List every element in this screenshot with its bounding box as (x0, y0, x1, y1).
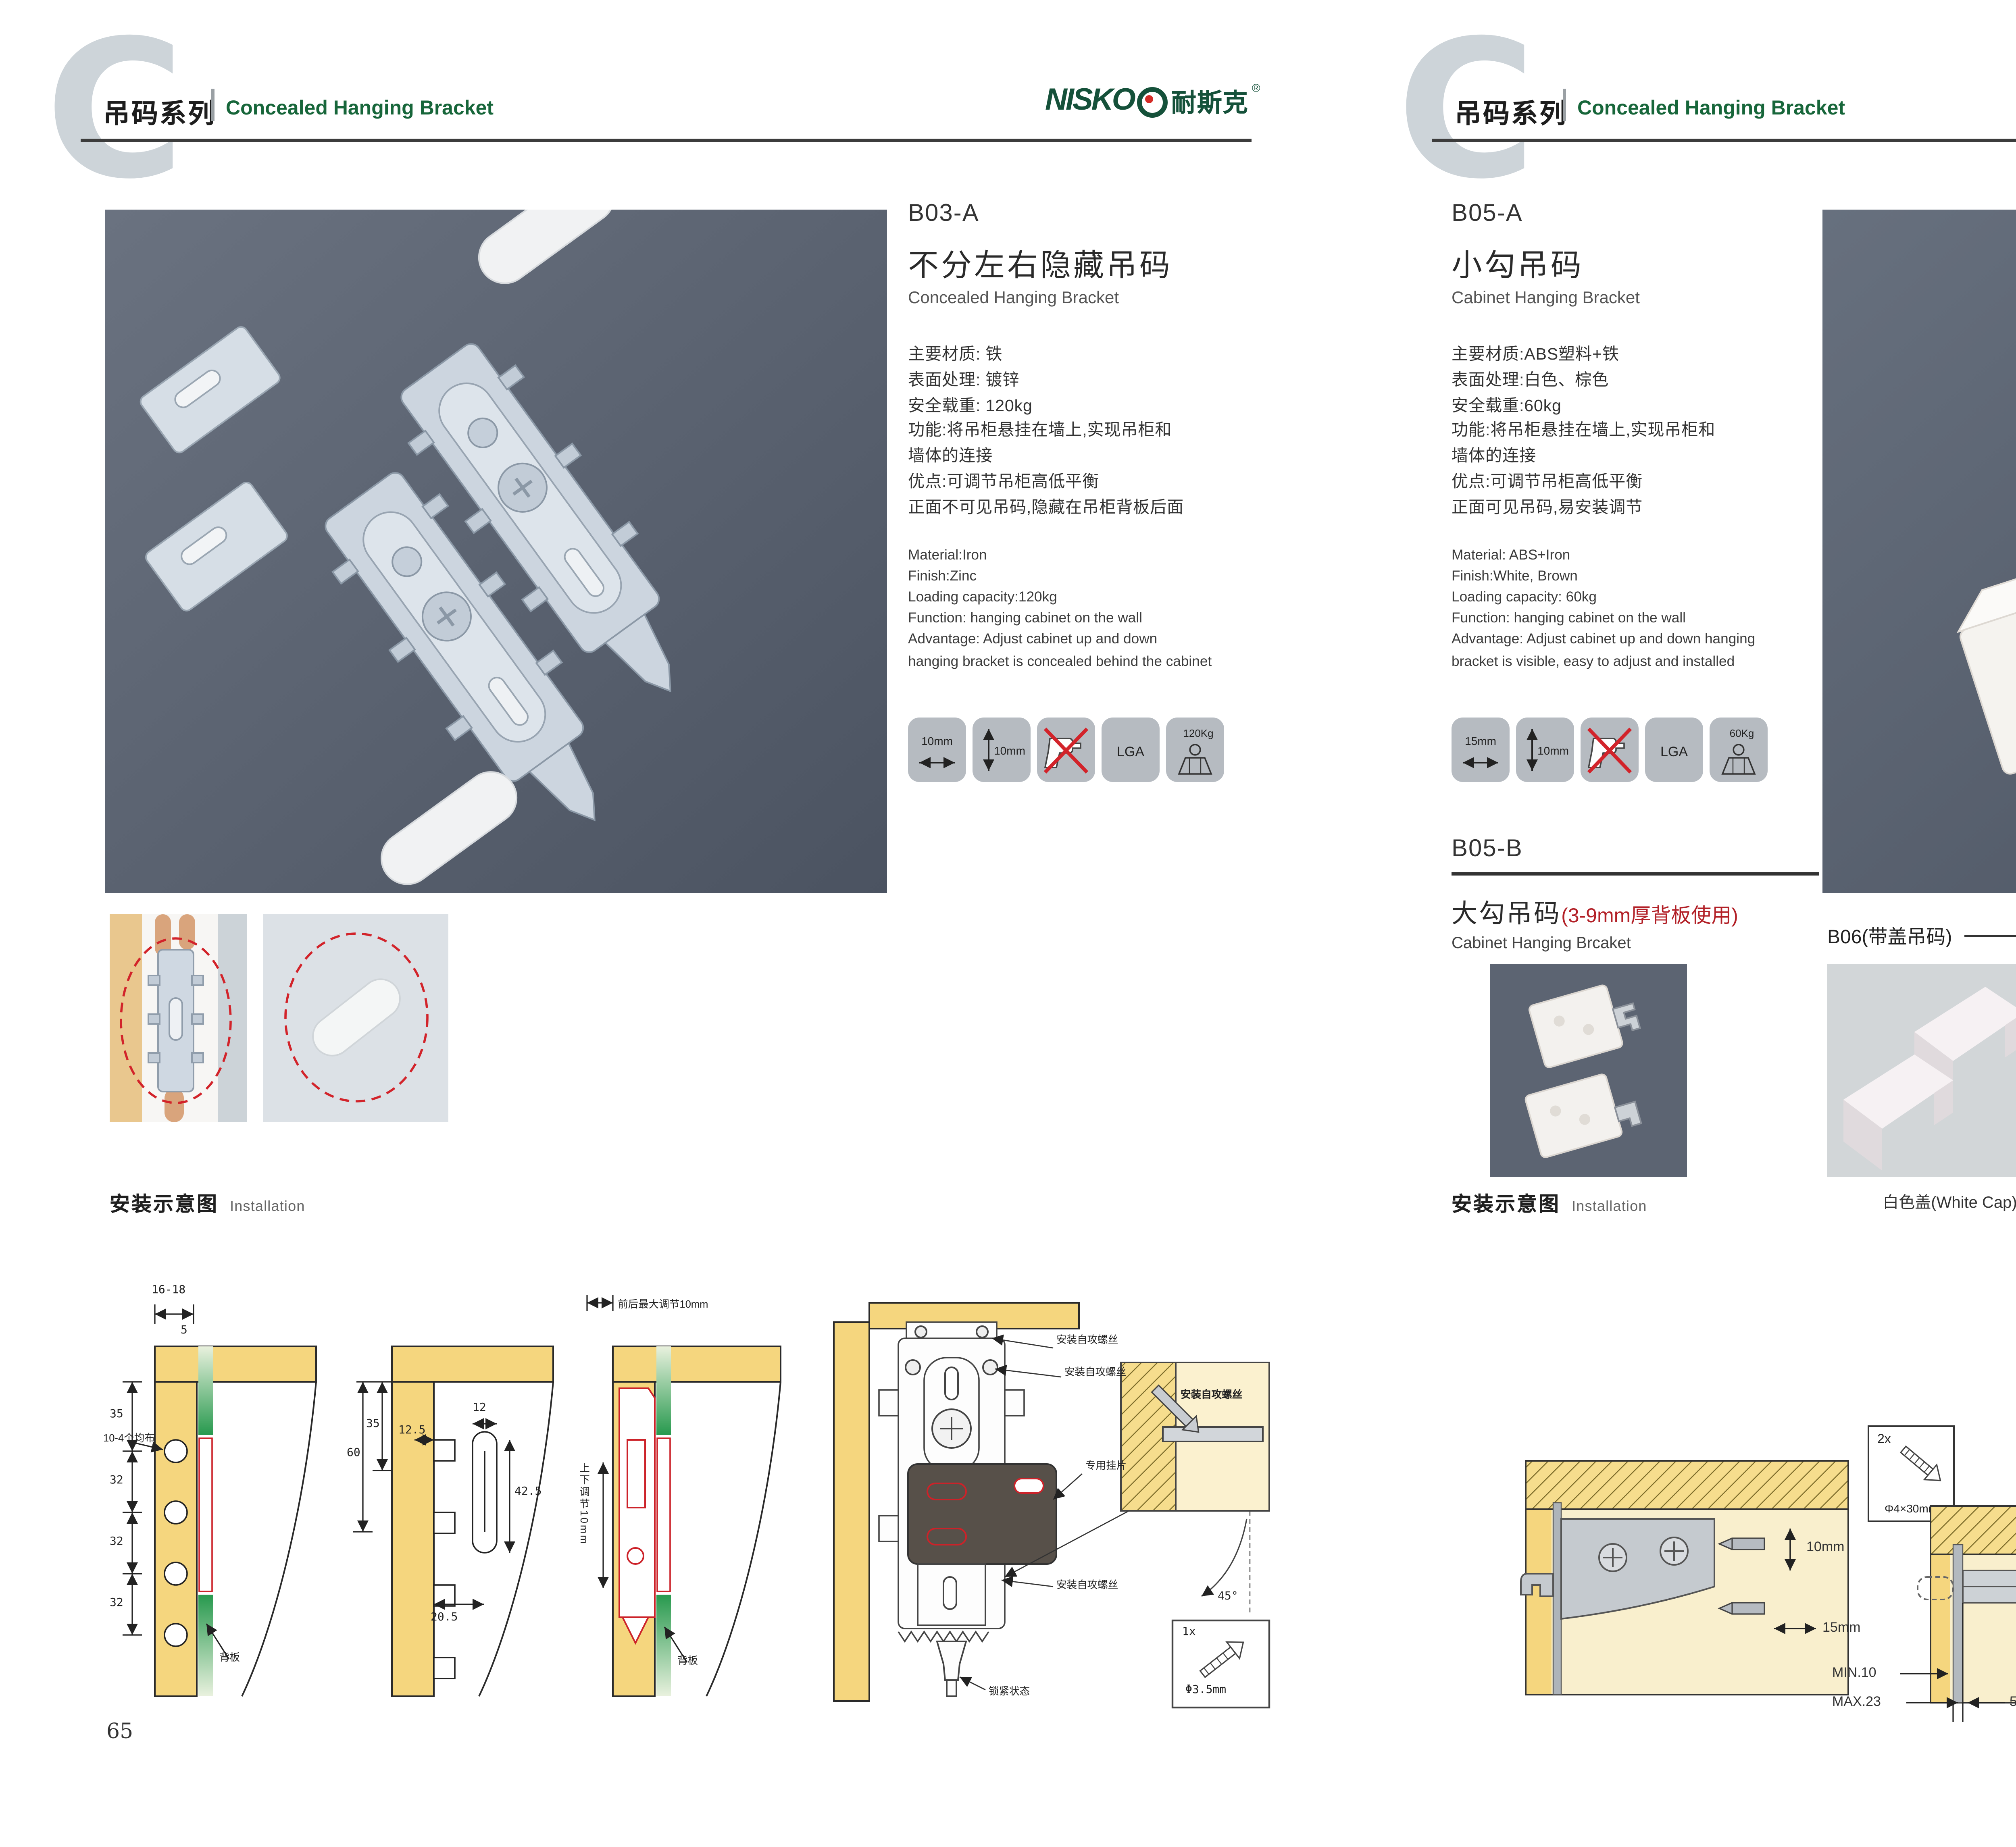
registered-mark: ® (1252, 84, 1260, 95)
height-dimension-icon: 10mm (973, 717, 1031, 782)
svg-text:10mm: 10mm (1537, 744, 1569, 757)
svg-text:15mm: 15mm (1465, 734, 1496, 747)
logo-target-icon (1137, 86, 1168, 117)
width-dimension-icon: 15mm (1452, 717, 1510, 782)
series-title-zh: 吊码系列 (1455, 92, 1568, 131)
header-separator (1563, 89, 1565, 121)
lga-cert-icon: LGA (1645, 717, 1703, 782)
installation-heading-zh: 安装示意图 (1452, 1193, 1560, 1216)
installation-heading-en: Installation (230, 1198, 305, 1214)
install-diagram-2: 60 35 12.5 12 42.5 20.5 (344, 1282, 561, 1714)
installation-heading-zh: 安装示意图 (110, 1193, 219, 1216)
spec-line: 安全载重:60kg (1452, 394, 1814, 420)
svg-text:LGA: LGA (1660, 744, 1688, 759)
spec-line: Material: ABS+Iron (1452, 544, 1814, 566)
spec-line: 优点:可调节吊柜高低平衡 (1452, 471, 1814, 496)
product-title-en: Cabinet Hanging Bracket (1452, 289, 1814, 308)
product-title-en: Cabinet Hanging Brcaket (1452, 934, 1822, 952)
spec-line: Finish:White, Brown (1452, 566, 1814, 587)
dim-label: MAX.23 (1832, 1693, 1881, 1709)
spec-line: 主要材质:ABS塑料+铁 (1452, 343, 1814, 369)
b05a-product-photo (1822, 210, 2016, 893)
product-title-zh: 不分左右隐藏吊码 (908, 242, 1271, 285)
b05b-product-photo (1490, 964, 1687, 1177)
b05b-title-note: (3-9mm厚背板使用) (1561, 904, 1738, 926)
spec-line: 表面处理:白色、棕色 (1452, 369, 1814, 394)
load-capacity-icon: 120Kg (1166, 717, 1224, 782)
dim-label: 32 (110, 1474, 123, 1487)
screw-label: 安装自攻螺丝 (1064, 1364, 1126, 1379)
dim-label: MIN.10 (1832, 1664, 1876, 1680)
spec-line: Advantage: Adjust cabinet up and down ha… (1452, 630, 1814, 651)
spec-line: 墙体的连接 (908, 445, 1271, 471)
b03a-cover-thumb (263, 914, 448, 1122)
spec-line: 功能:将吊柜悬挂在墙上,实现吊柜和 (908, 420, 1271, 445)
installation-heading-en: Installation (1572, 1198, 1647, 1214)
logo-text-zh: 耐斯克 (1171, 84, 1249, 119)
holes-label: 10-4个均布 (103, 1430, 155, 1445)
dim-label: 58 (2010, 1693, 2016, 1709)
dia-label: Φ3.5mm (1185, 1683, 1226, 1696)
b03a-info: B03-A 不分左右隐藏吊码 Concealed Hanging Bracket… (908, 200, 1271, 782)
plate-label: 专用挂片 (1085, 1458, 1127, 1472)
adjust-label-vertical: 上下调节10mm (576, 1462, 590, 1545)
spec-line: 安全载重: 120kg (908, 394, 1271, 420)
product-title-zh: 小勾吊码 (1452, 242, 1814, 285)
dim-label: 32 (110, 1535, 123, 1548)
dim-label: 5 (181, 1324, 187, 1337)
dim-label: 12 (473, 1401, 486, 1414)
dim-label: 20.5 (431, 1611, 458, 1624)
page-right: C 吊码系列 Concealed Hanging Bracket NISKO耐斯… (1352, 0, 2016, 1847)
b06-heading: B06(带盖吊码) (1827, 922, 1952, 950)
spec-line: Loading capacity:120kg (908, 587, 1271, 608)
height-dimension-icon: 10mm (1516, 717, 1574, 782)
install-diagram-r1: 10mm 15mm (1513, 1448, 1876, 1714)
spec-line: Loading capacity: 60kg (1452, 587, 1814, 608)
product-code: B03-A (908, 200, 1271, 227)
b06-white-cap-figure: 白色盖(White Cap) (1827, 964, 2016, 1213)
nisko-logo: NISKO耐斯克® (1045, 84, 1260, 119)
installation-heading: 安装示意图Installation (1452, 1187, 1647, 1217)
white-cap-image (1827, 964, 2016, 1177)
spec-line: hanging bracket is concealed behind the … (908, 651, 1271, 672)
spec-line: Advantage: Adjust cabinet up and down (908, 630, 1271, 651)
dim-label: 12.5 (398, 1424, 425, 1437)
svg-text:LGA: LGA (1117, 744, 1144, 759)
spec-line: 正面不可见吊码,隐藏在吊柜背板后面 (908, 496, 1271, 522)
dim-label: 16-18 (152, 1283, 185, 1296)
spec-line: 表面处理: 镀锌 (908, 369, 1271, 394)
page-number: 65 (106, 1720, 133, 1745)
installation-heading: 安装示意图Installation (110, 1187, 305, 1217)
spec-line: Finish:Zinc (908, 566, 1271, 587)
logo-text-en: NISKO (1045, 84, 1134, 119)
spec-line: 正面可见吊码,易安装调节 (1452, 496, 1814, 522)
svg-text:60Kg: 60Kg (1730, 727, 1754, 739)
b06-rule (1965, 935, 2016, 937)
svg-text:10mm: 10mm (921, 734, 953, 747)
b05a-info: B05-A 小勾吊码 Cabinet Hanging Bracket 主要材质:… (1452, 200, 1814, 782)
lga-cert-icon: LGA (1102, 717, 1160, 782)
spec-line: 功能:将吊柜悬挂在墙上,实现吊柜和 (1452, 420, 1814, 445)
angle-label: 45° (1218, 1590, 1238, 1603)
screw-label: 安装自攻螺丝 (1056, 1577, 1118, 1591)
spec-line: Material:Iron (908, 544, 1271, 566)
b05b-title-text: 大勾吊码 (1452, 901, 1561, 928)
series-title-en: Concealed Hanging Bracket (226, 97, 494, 119)
product-title-en: Concealed Hanging Bracket (908, 289, 1271, 308)
svg-text:120Kg: 120Kg (1183, 727, 1213, 739)
svg-text:10mm: 10mm (994, 744, 1025, 757)
install-diagram-1: 16-18 5 35 32 32 32 10-4个均布 背板 (110, 1282, 335, 1714)
specs-zh: 主要材质: 铁 表面处理: 镀锌 安全载重: 120kg 功能:将吊柜悬挂在墙上… (908, 343, 1271, 522)
qty-label: 1x (1182, 1625, 1196, 1638)
adjust-label: 前后最大调节10mm (618, 1296, 708, 1311)
header-separator (211, 89, 214, 121)
b05b-info: B05-B 大勾吊码(3-9mm厚背板使用) Cabinet Hanging B… (1452, 835, 1822, 952)
header-rule (81, 139, 1252, 142)
load-capacity-icon: 60Kg (1710, 717, 1768, 782)
spec-icon-row: 15mm 10mm LGA (1452, 717, 1814, 782)
dim-label: 35 (110, 1408, 123, 1421)
catalog-spread: C 吊码系列 Concealed Hanging Bracket NISKO耐斯… (0, 0, 2016, 1847)
spec-icon-row: 10mm 10mm LGA (908, 717, 1271, 782)
page-left: C 吊码系列 Concealed Hanging Bracket NISKO耐斯… (0, 0, 1352, 1847)
no-drill-icon (1037, 717, 1095, 782)
spec-line: Function: hanging cabinet on the wall (908, 608, 1271, 630)
header-rule (1432, 139, 2016, 142)
spec-line: 优点:可调节吊柜高低平衡 (908, 471, 1271, 496)
lock-state-label: 锁紧状态 (989, 1683, 1030, 1698)
series-title-zh: 吊码系列 (103, 92, 216, 131)
no-drill-icon (1581, 717, 1639, 782)
specs-en: Material:Iron Finish:Zinc Loading capaci… (908, 544, 1271, 672)
product-code: B05-B (1452, 835, 1822, 863)
spec-line: 墙体的连接 (1452, 445, 1814, 471)
b05b-rule (1452, 872, 1819, 875)
specs-zh: 主要材质:ABS塑料+铁 表面处理:白色、棕色 安全载重:60kg 功能:将吊柜… (1452, 343, 1814, 522)
backboard-label: 背板 (677, 1653, 698, 1667)
product-code: B05-A (1452, 200, 1814, 227)
dim-label: 42.5 (514, 1485, 541, 1498)
b06-heading-row: B06(带盖吊码) (1827, 922, 2016, 950)
dim-label: 60 (347, 1446, 360, 1459)
screw-label: 安装自攻螺丝 (1181, 1387, 1242, 1401)
cap-caption: 白色盖(White Cap) (1827, 1188, 2016, 1213)
b03a-install-thumb (110, 914, 247, 1122)
series-title-en: Concealed Hanging Bracket (1577, 97, 1845, 119)
width-dimension-icon: 10mm (908, 717, 966, 782)
spec-line: Function: hanging cabinet on the wall (1452, 608, 1814, 630)
screw-label: 安装自攻螺丝 (1056, 1332, 1118, 1346)
install-diagram-3: 前后最大调节10mm 上下调节10mm 背板 (574, 1282, 803, 1714)
dim-label: 32 (110, 1596, 123, 1609)
spec-line: bracket is visible, easy to adjust and i… (1452, 651, 1814, 672)
product-title-zh: 大勾吊码(3-9mm厚背板使用) (1452, 891, 1822, 930)
specs-en: Material: ABS+Iron Finish:White, Brown L… (1452, 544, 1814, 672)
backboard-label: 背板 (219, 1649, 240, 1664)
install-diagram-4: 安装自攻螺丝 安装自攻螺丝 专用挂片 安装自攻螺丝 锁紧状态 安装自攻螺丝 45… (814, 1274, 1274, 1733)
dim-label: 35 (366, 1417, 380, 1430)
b03a-product-photo (105, 210, 887, 893)
install-diagram-r2: 18 MIN.10 MAX.23 58 (1822, 1487, 2016, 1728)
spec-line: 主要材质: 铁 (908, 343, 1271, 369)
